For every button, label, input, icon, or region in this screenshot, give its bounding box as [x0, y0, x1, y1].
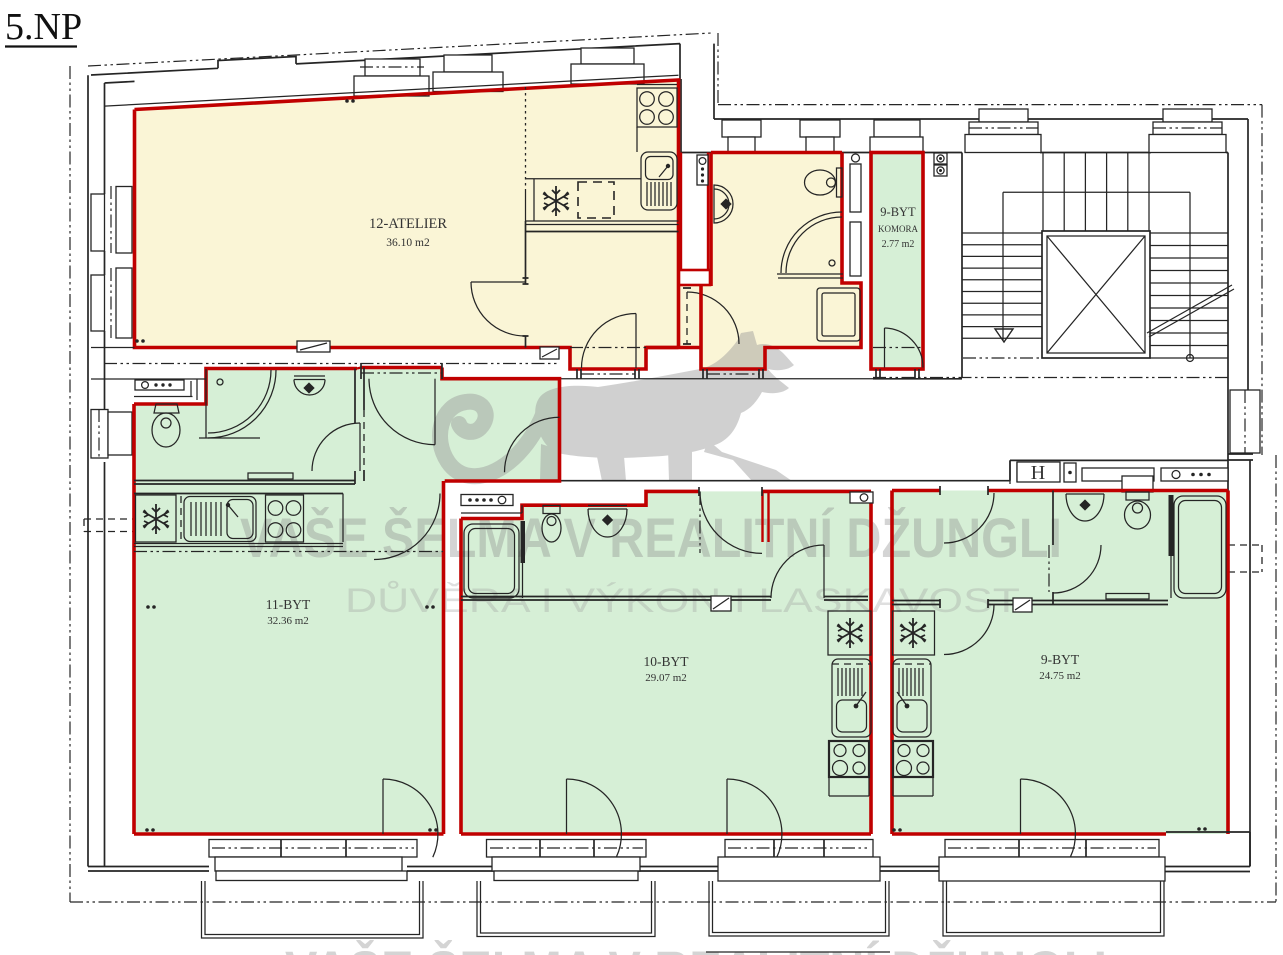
- svg-text:9-BYT: 9-BYT: [1041, 652, 1080, 667]
- svg-text:10-BYT: 10-BYT: [644, 654, 690, 669]
- svg-text:24.75 m2: 24.75 m2: [1039, 670, 1081, 682]
- svg-text:9-BYT: 9-BYT: [880, 205, 916, 219]
- svg-text:VAŠE ŠELMA V REALITNÍ DŽUNGLI: VAŠE ŠELMA V REALITNÍ DŽUNGLI: [285, 939, 1107, 955]
- svg-text:32.36 m2: 32.36 m2: [267, 615, 309, 627]
- svg-text:2.77 m2: 2.77 m2: [882, 239, 915, 250]
- svg-text:29.07 m2: 29.07 m2: [645, 672, 687, 684]
- svg-text:H: H: [1031, 462, 1045, 484]
- svg-text:11-BYT: 11-BYT: [266, 597, 311, 612]
- svg-text:VAŠE ŠELMA V REALITNÍ DŽUNGLI: VAŠE ŠELMA V REALITNÍ DŽUNGLI: [240, 506, 1062, 569]
- svg-text:12-ATELIER: 12-ATELIER: [369, 216, 447, 232]
- svg-text:KOMORA: KOMORA: [878, 224, 919, 234]
- svg-text:5.NP: 5.NP: [5, 6, 82, 48]
- svg-text:36.10 m2: 36.10 m2: [386, 237, 430, 249]
